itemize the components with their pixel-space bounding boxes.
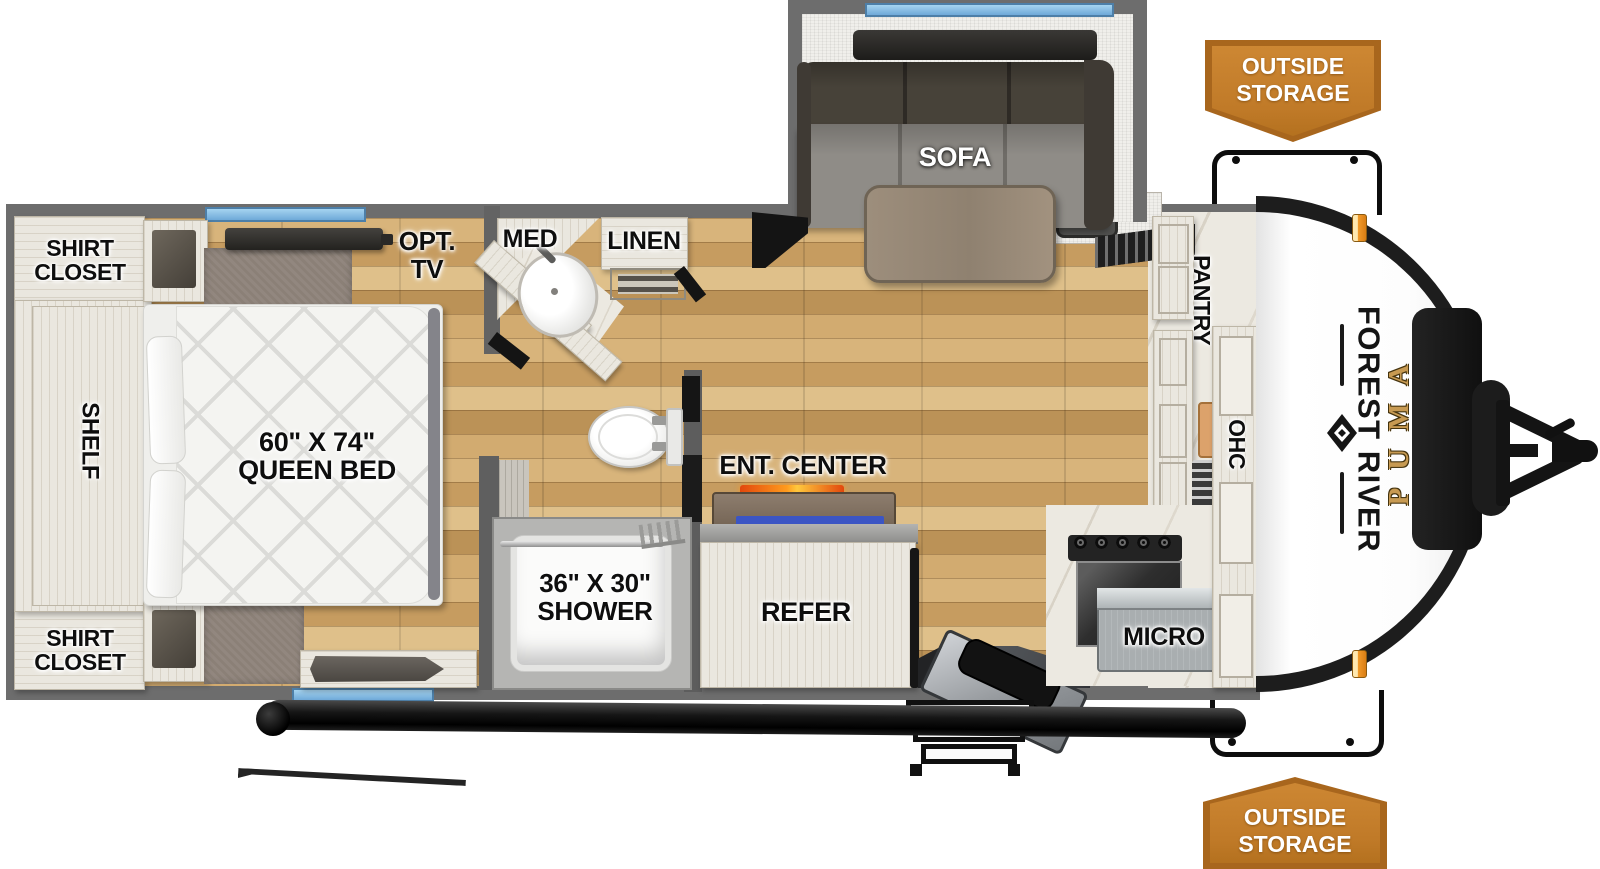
awning-tube	[264, 700, 1246, 739]
screw-icon	[1346, 738, 1354, 746]
stabilizer-jack-bar	[238, 768, 466, 786]
shirt-closet-top-label: SHIRT CLOSET	[32, 236, 128, 285]
bedroom-window-top	[205, 207, 366, 222]
linen-label: LINEN	[604, 228, 684, 255]
toilet-hinge	[652, 442, 667, 451]
tv-bar-mount	[381, 234, 393, 245]
sink-drain	[551, 288, 558, 295]
micro-label: MICRO	[1107, 624, 1221, 651]
pantry-door-panel	[1158, 266, 1189, 314]
toilet-hinge	[652, 416, 667, 425]
sofa-armrest-left	[797, 62, 811, 228]
nightstand-bottom-opening	[152, 610, 196, 668]
bedroom-carpet-bottom	[204, 598, 304, 684]
hitch-frame-base	[1496, 400, 1510, 506]
cabinet-door-panel	[1159, 404, 1187, 458]
shirt-closet-bottom-label: SHIRT CLOSET	[32, 626, 128, 675]
nightstand-top-opening	[152, 230, 196, 288]
shelf-label: SHELF	[77, 371, 102, 511]
pantry-label: PANTRY	[1190, 248, 1214, 352]
toilet-seat-line	[598, 414, 658, 460]
cabinet-door-panel	[1159, 338, 1187, 386]
brand-accent-line	[1340, 472, 1344, 534]
stove-knob	[1074, 536, 1087, 549]
step-tread	[921, 744, 1017, 764]
bolster-cushion	[310, 656, 444, 682]
stove-knob	[1116, 536, 1129, 549]
opt-tv-label: OPT. TV	[393, 228, 461, 283]
badge-label: OUTSIDE STORAGE	[1205, 40, 1381, 107]
med-label: MED	[498, 226, 562, 253]
screw-icon	[1350, 156, 1358, 164]
badge-label: OUTSIDE STORAGE	[1203, 777, 1387, 858]
marker-light-icon	[1352, 650, 1367, 678]
sofa-armrest-right	[1084, 60, 1114, 230]
marker-light-icon	[1352, 214, 1367, 242]
bed-foot-edge	[428, 308, 440, 600]
hitch-crossbar	[1510, 444, 1538, 457]
awning-tube-endcap	[256, 702, 290, 736]
sofa-tv-shelf	[853, 30, 1097, 60]
ohc-door-panel	[1219, 594, 1253, 678]
pillow	[146, 335, 186, 464]
bed-type-label: QUEEN BED	[217, 456, 417, 485]
outside-storage-badge-bottom: OUTSIDE STORAGE	[1203, 777, 1387, 869]
pantry-door-panel	[1158, 224, 1189, 264]
refer-label: REFER	[716, 598, 896, 627]
microwave-lid	[1097, 588, 1231, 610]
slideout-right-wall	[1133, 0, 1147, 222]
wall-endcap	[682, 376, 700, 422]
wall-endcap	[682, 455, 702, 522]
toilet-tank	[666, 408, 683, 466]
tv-bar	[225, 228, 383, 250]
screw-icon	[1228, 738, 1236, 746]
sofa-label: SOFA	[905, 143, 1005, 172]
slideout-window	[865, 3, 1114, 17]
hitch-coupler	[1552, 440, 1598, 462]
step-foot	[1008, 764, 1020, 776]
stove-knob	[1095, 536, 1108, 549]
floorplan-canvas: OUTSIDE STORAGE OUTSIDE STORAGE SHIRT CL…	[0, 0, 1600, 869]
refrigerator-door-seal	[910, 548, 919, 688]
brand-accent-line	[1340, 324, 1344, 386]
step-foot	[910, 764, 922, 776]
brand-manufacturer: FOREST RIVER	[1352, 284, 1385, 574]
bedroom-carpet-top	[204, 248, 352, 312]
sofa-back	[803, 62, 1110, 126]
ohc-label: OHC	[1225, 402, 1249, 486]
ohc-door-panel	[1219, 482, 1253, 564]
counter-edge-band	[700, 524, 918, 544]
ent-center-label: ENT. CENTER	[703, 452, 903, 480]
shower-label: SHOWER	[515, 598, 675, 626]
shower-left-wall-trim	[499, 460, 529, 518]
stove-knob	[1158, 536, 1171, 549]
shower-size-label: 36" X 30"	[515, 570, 675, 598]
shower-rod	[500, 541, 664, 547]
outside-storage-badge-top: OUTSIDE STORAGE	[1205, 40, 1381, 142]
dinette-table	[864, 185, 1056, 283]
bed-size-label: 60" X 74"	[217, 428, 417, 457]
pillow	[146, 469, 186, 598]
screw-icon	[1232, 156, 1240, 164]
stove-knob	[1137, 536, 1150, 549]
